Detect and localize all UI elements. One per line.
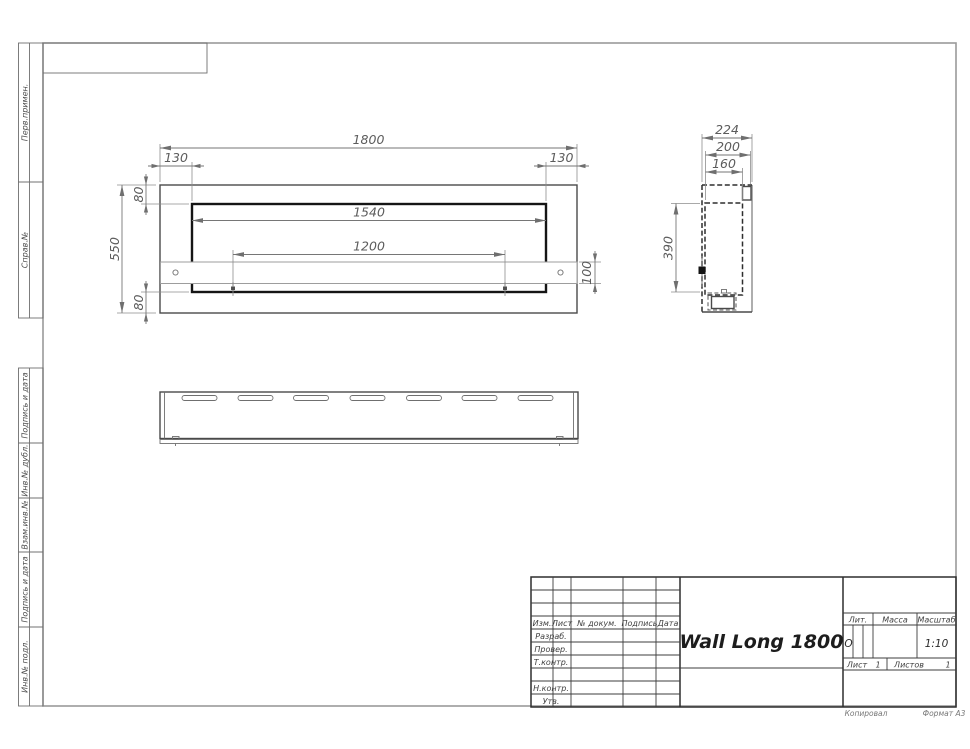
dim-front-opening-width: 1540	[353, 205, 385, 220]
tb-col-izm: Изм.	[533, 619, 552, 628]
tb-masshtab-label: Масштаб	[917, 616, 955, 625]
dim-front-left-offset: 130	[164, 150, 188, 165]
tb-row-t-kontr: Т.контр.	[534, 658, 569, 667]
side-base-notch	[722, 290, 727, 294]
vent-slot	[462, 396, 497, 401]
vent-slot	[182, 396, 217, 401]
margin-label-vzam-inv: Взам.инв.№	[21, 500, 30, 549]
tb-listov-label: Листов	[893, 661, 924, 670]
dim-side-body-height: 390	[661, 236, 676, 260]
vent-slot	[238, 396, 273, 401]
tb-row-n-kontr: Н.контр.	[533, 684, 569, 693]
sheet-footer: Копировал Формат А3	[845, 709, 966, 718]
tb-col-no-dokum: № докум.	[576, 619, 616, 628]
tb-lit-value: О	[844, 638, 852, 650]
tb-row-razrab: Разраб.	[535, 632, 566, 641]
side-wall-screw	[699, 267, 706, 275]
vent-slot	[407, 396, 442, 401]
margin-label-inv-podl: Инв.№ подл.	[21, 640, 30, 693]
dim-front-overall-width: 1800	[353, 132, 385, 147]
tb-col-list: Лист	[551, 619, 573, 628]
vent-slot	[350, 396, 385, 401]
margin-label-sprav-no: Справ.№	[21, 232, 30, 268]
side-top-bracket	[743, 187, 752, 201]
bottom-view	[160, 392, 578, 446]
sheet-frame	[43, 43, 956, 706]
dim-side-overall-depth: 224	[715, 122, 739, 137]
dim-front-mount-spacing: 1200	[353, 239, 385, 254]
left-margin-column: Перв.примен. Справ.№ Подпись и дата Инв.…	[19, 43, 44, 706]
side-body-hidden	[705, 203, 743, 295]
margin-label-podpis-data-lower: Подпись и дата	[21, 556, 30, 622]
blueprint-canvas: Перв.примен. Справ.№ Подпись и дата Инв.…	[0, 0, 970, 749]
footer-kopiroval-label: Копировал	[845, 709, 888, 718]
dim-side-inner-depth: 200	[716, 139, 740, 154]
tb-lit-label: Лит.	[848, 616, 867, 625]
tb-masshtab-value: 1:10	[925, 638, 949, 650]
vent-slot	[518, 396, 553, 401]
tb-listov-value: 1	[945, 661, 950, 670]
margin-label-perv-primen: Перв.примен.	[21, 84, 30, 142]
dim-front-bottom-flange: 80	[131, 295, 146, 311]
tb-col-podpis: Подпись	[622, 619, 658, 628]
bottom-body	[160, 392, 578, 439]
title-block: Изм. Лист № докум. Подпись Дата Разраб. …	[531, 577, 956, 707]
dim-front-right-offset: 130	[550, 150, 574, 165]
front-view: 1800 130 130 80 80 550 1540	[107, 132, 601, 324]
stamp-box-top-left	[43, 43, 207, 73]
dim-side-body-depth: 160	[712, 156, 736, 171]
tb-list-label: Лист	[846, 661, 868, 670]
tb-list-value: 1	[875, 661, 880, 670]
vent-slot	[294, 396, 329, 401]
tb-col-data: Дата	[657, 619, 679, 628]
dim-front-overall-height: 550	[107, 237, 122, 261]
front-mount-bracket	[161, 262, 578, 284]
dim-front-top-flange: 80	[131, 187, 146, 203]
tb-document-title: Wall Long 1800	[680, 631, 844, 653]
side-view: 224 200 160 390	[661, 122, 753, 312]
footer-format-label: Формат А3	[923, 709, 966, 718]
drawing-sheet: Перв.примен. Справ.№ Подпись и дата Инв.…	[0, 0, 970, 749]
tb-row-utv: Утв.	[543, 697, 560, 706]
side-base-box	[712, 297, 735, 309]
dim-front-bracket-height: 100	[579, 261, 594, 285]
tb-massa-label: Масса	[882, 616, 908, 625]
tb-row-prover: Провер.	[534, 645, 567, 654]
margin-label-inv-dubl: Инв.№ дубл.	[21, 444, 30, 496]
margin-label-podpis-data-upper: Подпись и дата	[21, 372, 30, 438]
bottom-rail	[160, 440, 578, 444]
